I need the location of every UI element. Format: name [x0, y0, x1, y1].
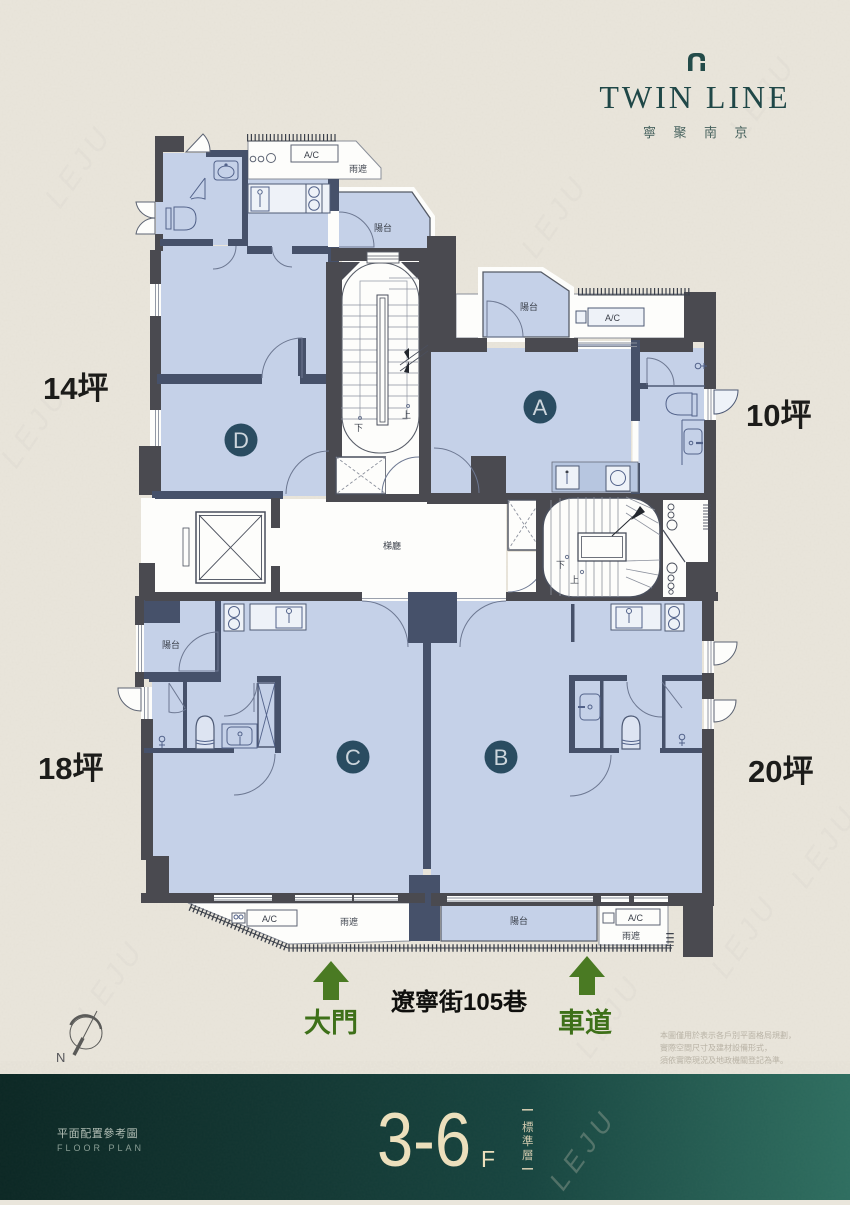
svg-text:下: 下	[354, 423, 363, 433]
svg-text:雨遮: 雨遮	[622, 930, 640, 941]
svg-text:A/C: A/C	[605, 313, 621, 323]
svg-text:陽台: 陽台	[510, 915, 528, 926]
svg-text:梯廳: 梯廳	[383, 540, 401, 551]
svg-text:陽台: 陽台	[162, 639, 180, 650]
svg-text:大門: 大門	[304, 1008, 358, 1038]
svg-text:實際空間尺寸及建材設備形式，: 實際空間尺寸及建材設備形式，	[660, 1043, 772, 1053]
svg-text:平面配置參考圖: 平面配置參考圖	[57, 1126, 138, 1140]
svg-text:雨遮: 雨遮	[349, 163, 367, 174]
svg-text:D: D	[233, 428, 249, 453]
svg-text:N: N	[56, 1050, 65, 1065]
svg-text:20坪: 20坪	[748, 754, 813, 789]
svg-text:車道: 車道	[558, 1007, 612, 1038]
svg-text:下: 下	[556, 560, 565, 570]
svg-text:B: B	[494, 745, 509, 770]
svg-text:須依實際現況及地政機關登記為準。: 須依實際現況及地政機關登記為準。	[660, 1055, 788, 1065]
svg-text:F: F	[481, 1146, 495, 1172]
svg-text:遼寧街105巷: 遼寧街105巷	[391, 988, 528, 1016]
svg-text:上: 上	[402, 410, 411, 420]
svg-text:C: C	[345, 745, 361, 770]
svg-text:寧聚南京: 寧聚南京	[643, 125, 765, 140]
svg-text:18坪: 18坪	[38, 751, 103, 786]
svg-text:本圖僅用於表示各戶別平面格局規劃，: 本圖僅用於表示各戶別平面格局規劃，	[660, 1030, 796, 1040]
svg-text:10坪: 10坪	[746, 398, 811, 433]
svg-text:陽台: 陽台	[374, 222, 392, 233]
svg-text:14坪: 14坪	[43, 371, 108, 406]
svg-text:TWIN LINE: TWIN LINE	[599, 79, 790, 115]
svg-text:A: A	[533, 395, 548, 420]
svg-text:準: 準	[522, 1134, 534, 1148]
svg-text:FLOOR PLAN: FLOOR PLAN	[57, 1143, 144, 1153]
svg-text:上: 上	[570, 575, 579, 585]
svg-text:A/C: A/C	[304, 150, 320, 160]
svg-text:3-6: 3-6	[377, 1098, 471, 1183]
svg-text:標: 標	[522, 1120, 534, 1134]
svg-text:陽台: 陽台	[520, 301, 538, 312]
svg-text:A/C: A/C	[628, 913, 644, 923]
svg-text:A/C: A/C	[262, 914, 278, 924]
svg-text:雨遮: 雨遮	[340, 916, 358, 927]
svg-text:層: 層	[522, 1149, 534, 1162]
